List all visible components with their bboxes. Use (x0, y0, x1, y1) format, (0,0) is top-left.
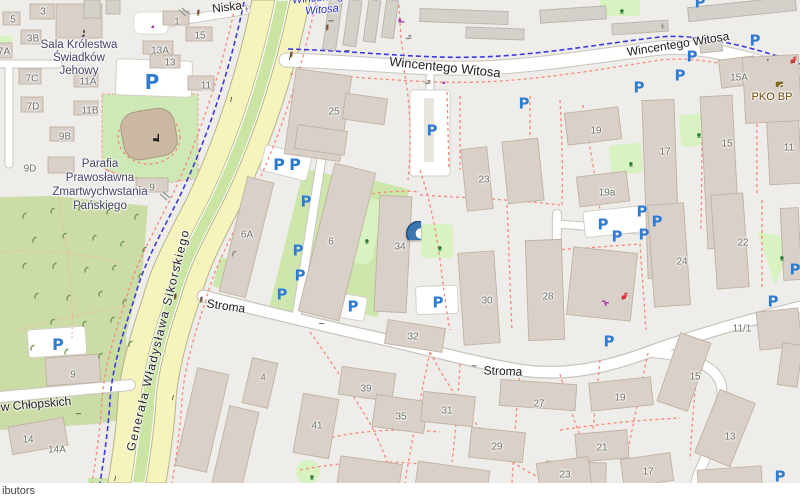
bnum-label: 9 (149, 183, 155, 194)
bnum-label: 14 (22, 435, 33, 446)
parking-icon: P (427, 124, 438, 139)
bnum-label: 11/1 (733, 324, 752, 335)
traffic-light-icon (187, 3, 200, 16)
parking-icon: P (598, 218, 609, 233)
picnic-icon (418, 72, 431, 85)
parking-icon: P (790, 263, 800, 278)
worship-icon (70, 22, 85, 37)
arrow-icon (275, 52, 290, 67)
parking-icon: P (519, 97, 530, 112)
traffic-light-icon (190, 290, 203, 303)
bnum-label: 7D (27, 102, 40, 113)
arrow-icon (230, 89, 246, 105)
playground-icon (612, 1, 625, 14)
traffic-light-icon (164, 287, 177, 300)
arrow-icon (114, 468, 130, 483)
bnum-label: 11 (784, 143, 794, 154)
playground-icon (430, 238, 443, 251)
parking-icon: P (433, 296, 444, 311)
bnum-label: 11 (201, 81, 211, 92)
arrow-icon (472, 366, 485, 379)
medkit-icon (782, 49, 797, 64)
bnum-label: 9D (24, 164, 37, 175)
map-canvas[interactable]: NiskaWincentego WitosaWincentego WitosaG… (0, 0, 800, 483)
street-label: w Chłopskich (0, 394, 72, 414)
bnum-label: 15 (194, 31, 205, 42)
picnic-icon (399, 27, 412, 40)
playground-icon (357, 231, 370, 244)
bnum-label: 27 (533, 399, 544, 410)
bnum-label: 28 (542, 292, 553, 303)
poi-label: Jehowy (60, 65, 99, 77)
bnum-label: 11A (79, 77, 96, 88)
parking-icon: P (301, 195, 312, 210)
bank-icon (767, 71, 783, 87)
bnum-label: 14A (48, 445, 66, 456)
playground-icon (689, 125, 702, 138)
tree-icon (112, 234, 125, 247)
parking-icon: P (293, 244, 304, 259)
tree-icon (120, 334, 133, 347)
arrow-icon (67, 401, 81, 415)
parking-icon: P (289, 157, 301, 173)
bnum-label: 7A (0, 47, 10, 58)
bnum-label: 23 (478, 175, 489, 186)
parking-icon: P (639, 228, 650, 243)
tree-icon (70, 198, 83, 211)
bnum-label: 5 (10, 15, 16, 26)
tree-icon (84, 228, 97, 241)
bnum-label: 15A (730, 73, 748, 84)
bnum-label: 21 (596, 443, 607, 454)
tree-icon (76, 260, 89, 273)
bnum-label: 31 (441, 406, 452, 417)
shelter-icon (224, 244, 237, 257)
map-overlay: NiskaWincentego WitosaWincentego WitosaG… (0, 0, 800, 483)
bnum-label: 25 (328, 107, 339, 118)
tree-icon (14, 256, 27, 269)
marker-icon[interactable] (383, 202, 421, 240)
tree-icon (26, 286, 39, 299)
tree-icon (126, 207, 139, 220)
bnum-label: 29 (491, 442, 502, 453)
bnum-label: 34 (394, 242, 405, 253)
bnum-label: 13 (164, 58, 175, 69)
parking-icon: P (277, 288, 288, 303)
bnum-label: 24 (676, 257, 687, 268)
bnum-label: 9 (70, 370, 76, 381)
bnum-label: 41 (311, 421, 322, 432)
tree-icon (42, 201, 55, 214)
tree-icon (90, 346, 103, 359)
bnum-label: 6 (328, 237, 334, 248)
tree-icon (114, 292, 127, 305)
street-label: Wincentego Witosa (389, 54, 502, 81)
cart-icon (593, 290, 609, 306)
bnum-label: 13 (724, 432, 735, 443)
parking-icon: P (634, 81, 645, 96)
parking-icon: P (145, 72, 160, 92)
poi-label: Sala Królestwa (41, 39, 118, 51)
parking-icon: P (273, 157, 285, 173)
bnum-label: 19 (590, 126, 601, 137)
arrow-icon (329, 21, 342, 34)
poi-label: Zmartwychwstania (52, 186, 147, 198)
bnum-label: 7C (26, 74, 39, 85)
parking-icon: P (652, 215, 663, 230)
tree-icon (22, 338, 35, 351)
street-label: Wincentego Witosa (626, 29, 730, 59)
tree-icon (74, 314, 87, 327)
arrow-icon (158, 392, 174, 408)
parking-icon: P (675, 69, 686, 84)
bnum-label: 11B (81, 106, 98, 117)
tree-icon (134, 240, 147, 253)
bnum-label: 19a (599, 188, 616, 199)
dot-black-icon (764, 56, 769, 61)
arrow-icon (337, 37, 351, 51)
dot-purple-icon (146, 20, 154, 28)
medkit-icon (613, 285, 628, 300)
parking-icon: P (687, 50, 698, 65)
bnum-label: 4 (260, 373, 266, 384)
tree-icon (24, 230, 37, 243)
arrow-icon (318, 323, 332, 337)
ladder-icon (236, 0, 249, 12)
bnum-label: 17 (659, 147, 670, 158)
bnum-label: 17 (642, 467, 653, 478)
attribution-text: ibutors (2, 485, 35, 497)
tree-icon (98, 202, 111, 215)
map-app: NiskaWincentego WitosaWincentego WitosaG… (0, 0, 800, 500)
ladder-icon (652, 16, 665, 29)
bank-label: PKO BP (752, 91, 793, 103)
parking-icon: P (348, 300, 359, 315)
bnum-label: 13A (151, 46, 169, 57)
bnum-label: 1 (174, 17, 180, 28)
tree-icon (56, 342, 69, 355)
bnum-label: 30 (481, 296, 492, 307)
bnum-label: 3 (40, 7, 46, 18)
tree-icon (44, 256, 57, 269)
bnum-label: 22 (737, 238, 748, 249)
bnum-label: 32 (407, 332, 418, 343)
tree-icon (90, 284, 103, 297)
bnum-label: 39 (360, 384, 371, 395)
bnum-label: 6A (241, 230, 253, 241)
bnum-label: 9B (59, 132, 71, 143)
poi-label: Parafia (82, 158, 118, 170)
dot-magenta-icon (437, 76, 445, 84)
parking-icon: P (695, 0, 706, 11)
parking-icon: P (775, 470, 786, 484)
tree-icon (14, 206, 27, 219)
street-label: Stroma (206, 296, 246, 315)
cross-icon (141, 124, 159, 142)
bnum-label: 15 (689, 372, 700, 383)
parking-icon: P (750, 34, 761, 49)
fitness-icon (390, 8, 405, 23)
tree-icon (102, 310, 115, 323)
tree-icon (54, 226, 67, 239)
tree-icon (104, 258, 117, 271)
bnum-label: 23 (559, 470, 570, 481)
playground-icon (302, 467, 315, 480)
street-label: Stroma (483, 363, 522, 378)
bnum-label: 35 (395, 412, 406, 423)
bnum-label: 19 (614, 393, 625, 404)
parking-icon: P (295, 269, 306, 284)
playground-icon (621, 154, 634, 167)
tree-icon (42, 312, 55, 325)
poi-label: Prawosławna (66, 172, 134, 184)
traffic-light-icon (316, 18, 329, 31)
parking-icon: P (612, 230, 623, 245)
tree-icon (58, 288, 71, 301)
parking-icon: P (637, 205, 648, 220)
arrow-icon (173, 254, 189, 270)
tree-icon (130, 266, 143, 279)
parking-icon: P (604, 335, 615, 350)
playground-icon (772, 248, 785, 261)
bnum-label: 3B (27, 34, 39, 45)
attribution-bar: ibutors (0, 483, 800, 500)
poi-label: Świadków (53, 52, 105, 64)
cycle-label: Witosa (305, 3, 339, 18)
parking-icon: P (768, 295, 779, 310)
bnum-label: 15 (721, 139, 732, 150)
